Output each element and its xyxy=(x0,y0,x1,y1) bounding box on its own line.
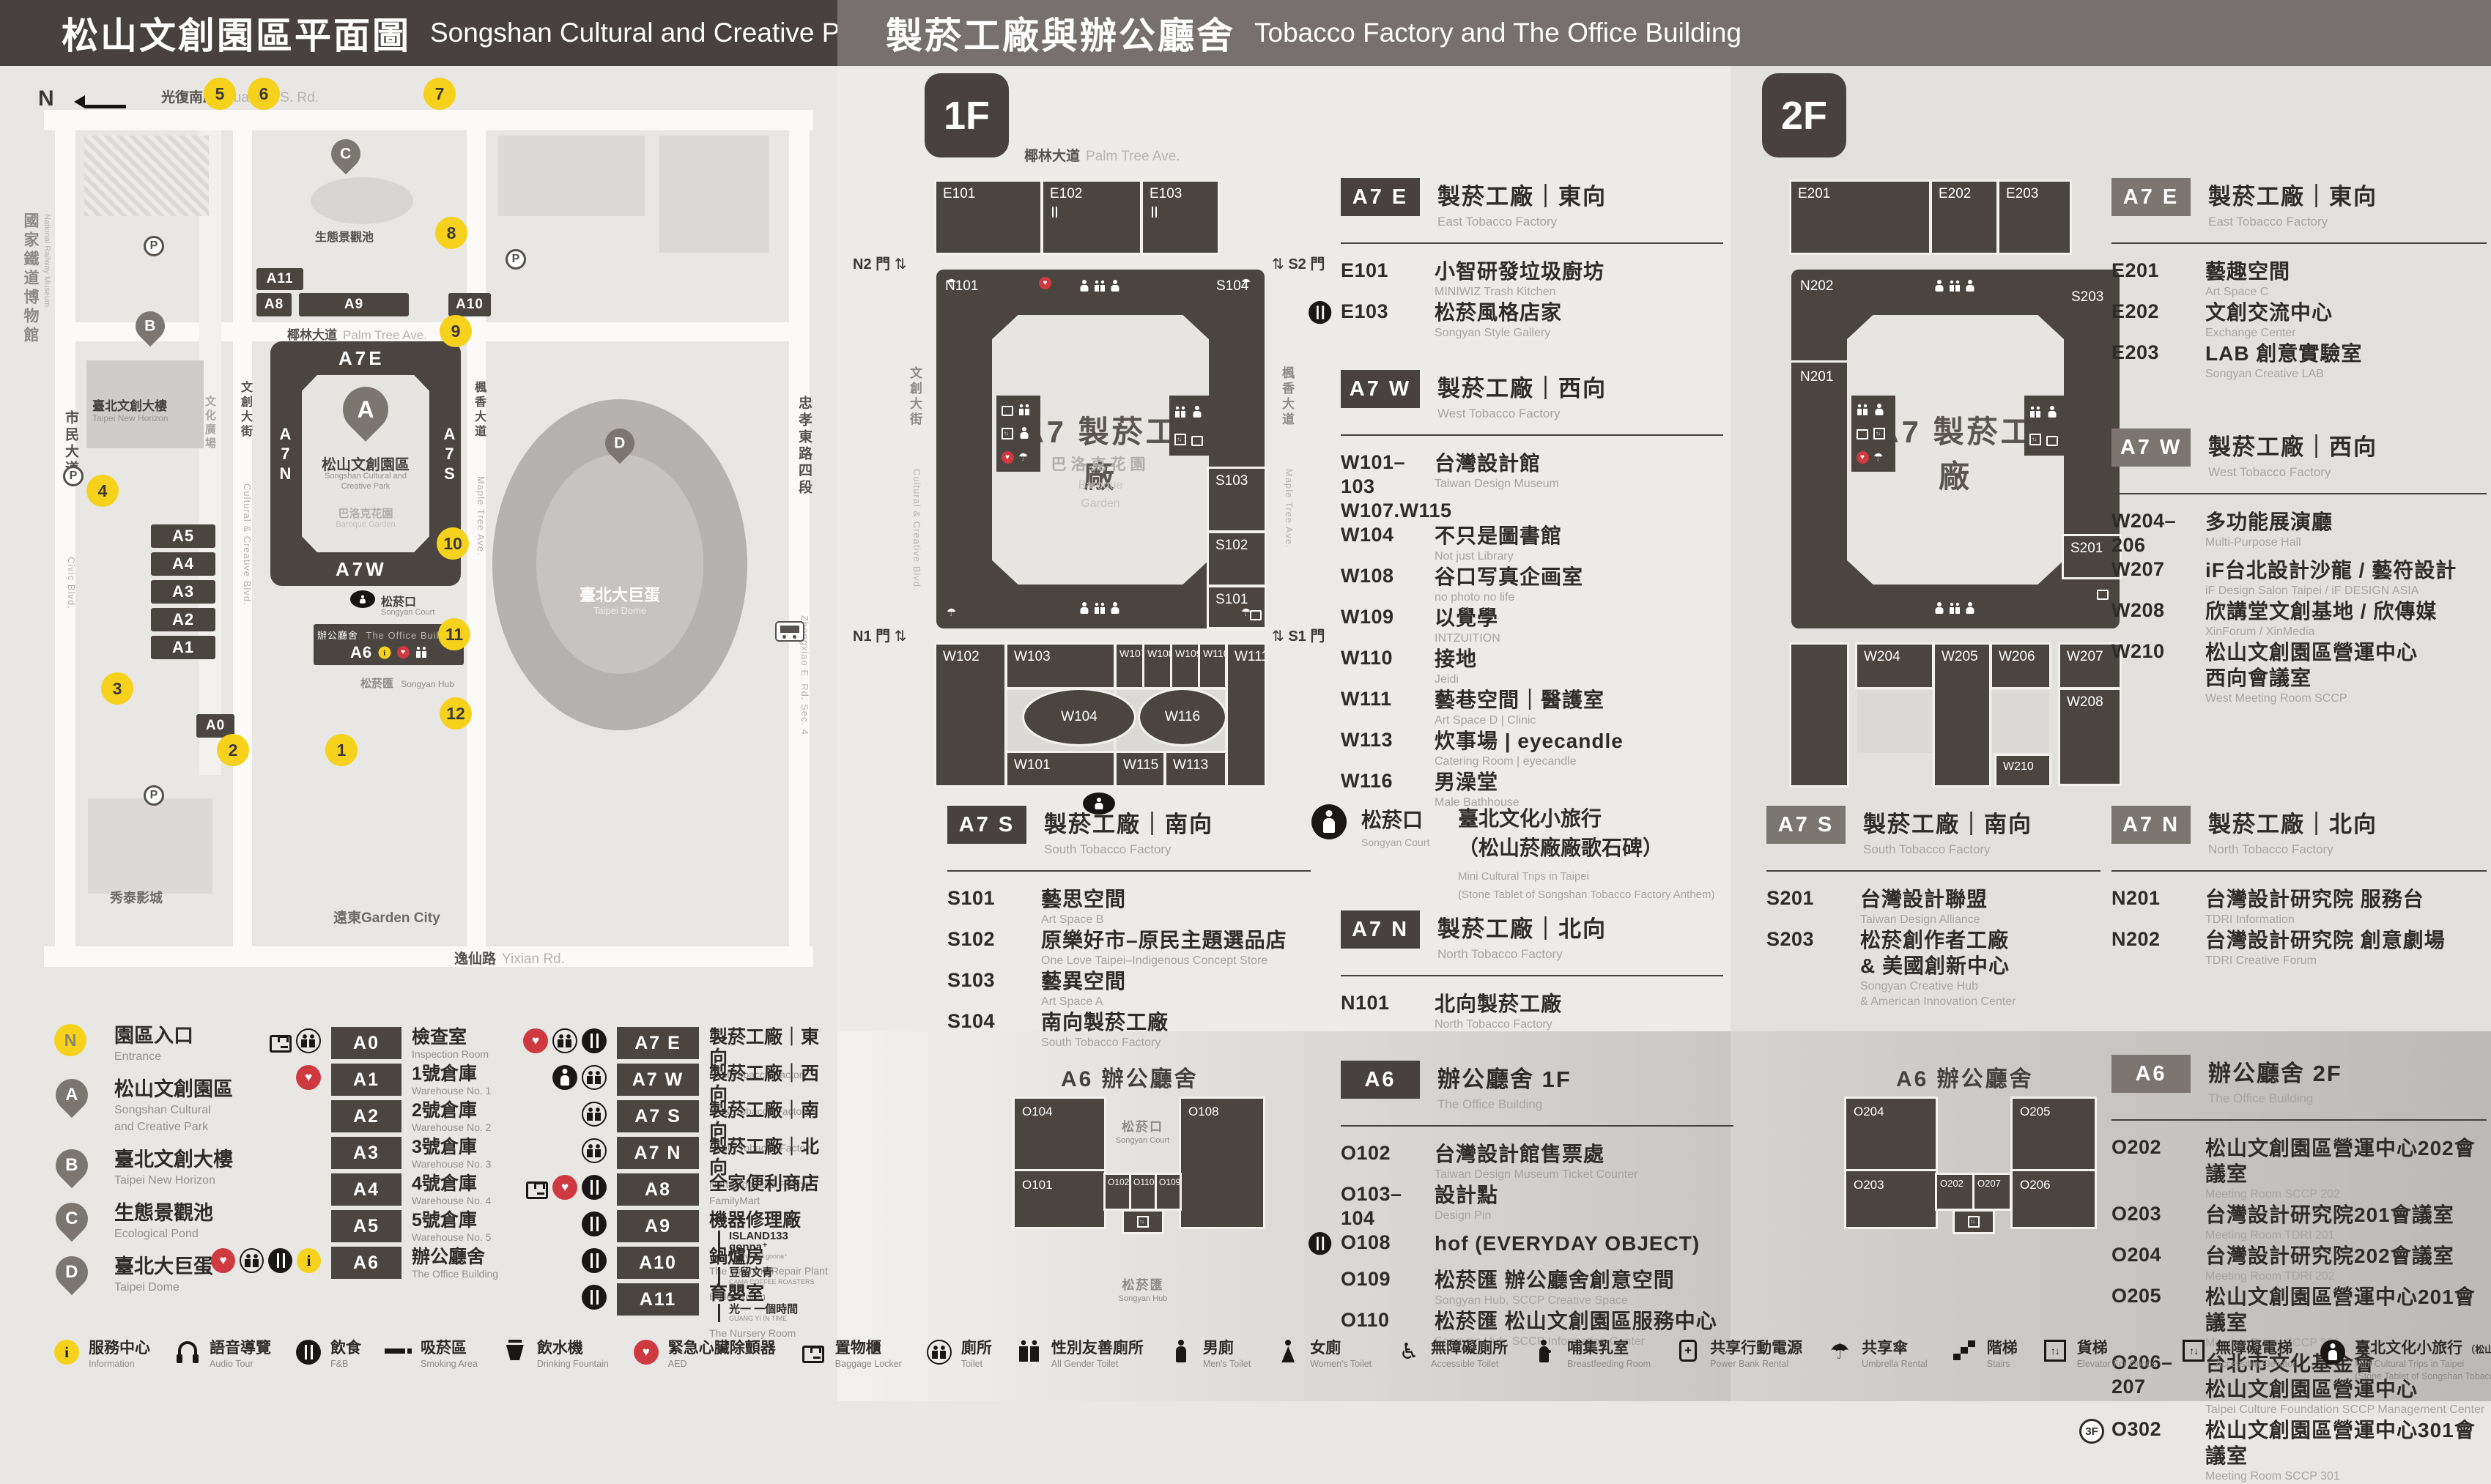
facility-text: 緊急心臟除顫器 AED xyxy=(668,1339,776,1370)
legend-building-row: A7 W 製菸工廠｜西向 West Tobacco Factory xyxy=(478,1064,829,1100)
person-icon xyxy=(1018,427,1030,439)
zone-badge: A6 xyxy=(2111,1055,2191,1093)
section-title-en: West Tobacco Factory xyxy=(2208,465,2487,480)
facility-icon-slot xyxy=(293,1339,324,1365)
section-title-en: The Office Building xyxy=(2208,1091,2487,1106)
facility-text: 男廁 Men's Toilet xyxy=(1203,1339,1251,1370)
room-name: 谷口写真企画室 no photo no life xyxy=(1435,564,1723,605)
gate-n2: N2 門 ⇅ xyxy=(853,252,906,273)
a6-court-label: 松菸口 Songyan Court xyxy=(1106,1116,1180,1145)
room-list-item: N101 北向製菸工廠 North Tobacco Factory xyxy=(1309,991,1723,1032)
facility-item: 共享傘 Umbrella Rental xyxy=(1824,1339,1928,1370)
room-list-item: W104 不只是圖書館 Not just Library xyxy=(1309,523,1723,564)
locker-icon xyxy=(1191,436,1203,446)
section-1f-a7s: A7 S 製菸工廠｜南向 South Tobacco Factory S101 … xyxy=(915,806,1311,1050)
room-o205: O205 xyxy=(2020,1105,2051,1119)
room-list-item: E101 小智研發垃圾廚坊 MINIWIZ Trash Kitchen xyxy=(1309,259,1723,300)
facility-item: 女廁 Women's Toilet xyxy=(1273,1339,1372,1370)
facility-icon-slot xyxy=(2317,1339,2348,1365)
room-w205: W205 xyxy=(1935,645,1989,785)
elevator-icon xyxy=(1873,428,1885,439)
legend-row-icons xyxy=(478,1100,607,1127)
facility-icon xyxy=(506,1340,524,1360)
room-w113: W113 xyxy=(1166,753,1225,785)
zone-badge: A7 W xyxy=(1341,370,1420,408)
room-code: W109 xyxy=(1341,605,1435,629)
room-name: 松山文創園區營運中心 西向會議室 West Meeting Room SCCP xyxy=(2205,639,2487,706)
right-header: 製菸工廠與辦公廳舍 Tobacco Factory and The Office… xyxy=(837,0,2491,66)
facility-item: 哺集乳室 Breastfeeding Room xyxy=(1530,1339,1651,1370)
room-code: W204–206 xyxy=(2111,509,2205,557)
legend-building-row: A11 育嬰室光一 一個時間GUANG YI IN TIME The Nurse… xyxy=(478,1283,829,1320)
section-title-zh: 辦公廳舍 1F xyxy=(1437,1061,1733,1094)
divider xyxy=(1766,870,2100,872)
elevator-icon xyxy=(1137,1216,1149,1228)
room-w107: W107 xyxy=(1117,645,1143,687)
room-name: 台灣設計研究院 創意劇場 TDRI Creative Forum xyxy=(2205,927,2487,968)
room-divider xyxy=(1015,1169,1104,1171)
toilet-icon xyxy=(1949,280,1961,292)
umbrella-icon xyxy=(947,606,958,619)
songyan-court-block: 松菸口 Songyan Court 臺北文化小旅行 （松山菸廠廠歌石碑） Min… xyxy=(1311,804,1726,904)
room-list-item: O203 台灣設計研究院201會議室 Meeting Room TDRI 201 xyxy=(2079,1202,2487,1243)
updown-arrow-icon: ⇅ xyxy=(895,628,907,645)
right-title-zh: 製菸工廠與辦公廳舍 xyxy=(886,7,1235,59)
room-list-item: W109 以覺學 INTZUITION xyxy=(1309,605,1723,646)
floor-badge-1f: 1F xyxy=(925,73,1009,157)
plan1f-street-right-en: Maple Tree Ave. xyxy=(1281,469,1297,549)
building-code-badge: A4 xyxy=(331,1173,401,1206)
building-code-badge: A7 S xyxy=(617,1100,699,1132)
floor-badge-2f: 2F xyxy=(1762,73,1846,157)
section-1f-a7w: A7 W 製菸工廠｜西向 West Tobacco Factory W101–1… xyxy=(1309,370,1723,810)
legend-building-row: A2 2號倉庫 Warehouse No. 2 xyxy=(211,1100,504,1137)
facility-text: 貨梯 Elevator For Goods xyxy=(2077,1339,2156,1370)
facility-item: 無障礙電梯 Accessible Elevator xyxy=(2178,1339,2295,1370)
room-code: O103–104 xyxy=(1341,1182,1435,1231)
facility-icon xyxy=(927,1340,952,1365)
facility-item: 飲水機 Drinking Fountain xyxy=(500,1339,609,1370)
room-w109: W109 xyxy=(1172,645,1199,687)
facility-icon-slot xyxy=(172,1339,203,1363)
person-icon xyxy=(1078,280,1090,292)
facility-text: 語音導覽 Audio Tour xyxy=(210,1339,271,1370)
room-divider xyxy=(1846,1169,1936,1171)
facility-item: 吸菸區 Smoking Area xyxy=(383,1339,478,1370)
room-code: O203 xyxy=(2111,1202,2205,1226)
facility-legend-strip: 服務中心 Information 語音導覽 Audio Tour 飲食 F&B xyxy=(51,1339,2491,1383)
divider xyxy=(1341,975,1723,976)
floor-3f-badge: 3F xyxy=(2079,1419,2104,1444)
room-icon xyxy=(1309,301,1331,324)
room-list-item: O109 松菸匯 辦公廳舍創意空間 Songyan Hub, SCCP Crea… xyxy=(1309,1267,1733,1308)
room-list-item: W210 松山文創園區營運中心 西向會議室 West Meeting Room … xyxy=(2079,639,2487,706)
zone-badge: A7 E xyxy=(1341,178,1420,216)
legend-building-row: A7 N 製菸工廠｜北向 North Tobacco Factory xyxy=(478,1137,829,1173)
entrance-number: 2 xyxy=(217,734,249,766)
facility-icon-slot xyxy=(500,1339,530,1360)
divider xyxy=(2111,242,2487,244)
room-name: 台灣設計研究院 服務台 TDRI Information xyxy=(2205,886,2487,927)
room-divider xyxy=(1791,360,1847,363)
legend-building-text: 育嬰室光一 一個時間GUANG YI IN TIME The Nursery R… xyxy=(709,1283,829,1340)
facility-icon xyxy=(2044,1340,2066,1362)
legend-row-icons xyxy=(478,1064,607,1090)
fnb-icon xyxy=(1149,207,1161,219)
section-title-en: West Tobacco Factory xyxy=(1437,407,1723,421)
room-name: 松菸匯 辦公廳舍創意空間 Songyan Hub, SCCP Creative … xyxy=(1435,1267,1733,1308)
plan2f-facility-icons-left xyxy=(1851,396,1895,472)
facility-icon-slot xyxy=(1014,1339,1045,1363)
plan1f-street-left: 文創大街 xyxy=(906,366,924,428)
room-name: 藝巷空間｜醫護室 Art Space D | Clinic xyxy=(1435,687,1723,728)
facility-text: 廁所 Toilet xyxy=(961,1339,992,1370)
room-w210: W210 xyxy=(1996,756,2049,785)
section-1f-a7n: A7 N 製菸工廠｜北向 North Tobacco Factory N101 … xyxy=(1309,910,1723,1032)
room-list-item: E201 藝趣空間 Art Space C xyxy=(2079,259,2487,300)
updown-arrow-icon: ⇅ xyxy=(895,256,907,272)
room-list-item: S104 南向製菸工廠 South Tobacco Factory xyxy=(915,1009,1311,1050)
room-name: 小智研發垃圾廚坊 MINIWIZ Trash Kitchen xyxy=(1435,259,1723,300)
room-e203: E203 xyxy=(1999,182,2070,253)
aed-icon xyxy=(1002,451,1014,464)
section-title-en: East Tobacco Factory xyxy=(1437,215,1723,229)
room-list-item: S103 藝異空間 Art Space A xyxy=(915,968,1311,1009)
room-name: 多功能展演廳 Multi-Purpose Hall xyxy=(2205,509,2487,550)
room-name: 設計點 Design Pin xyxy=(1435,1182,1733,1223)
room-name: 不只是圖書館 Not just Library xyxy=(1435,523,1723,564)
section-title-zh: 製菸工廠｜西向 xyxy=(1437,370,1723,403)
section-1f-a6: A6 辦公廳舍 1F The Office Building O102 台灣設計… xyxy=(1309,1061,1733,1349)
room-w104: W104 xyxy=(1024,690,1134,744)
elevator-icon xyxy=(1174,434,1186,445)
room-code: O109 xyxy=(1341,1267,1435,1291)
room-list-item: W110 接地 Jeidi xyxy=(1309,646,1723,687)
room-name: 松山文創園區營運中心202會議室 Meeting Room SCCP 202 xyxy=(2205,1135,2487,1202)
facility-icon-slot xyxy=(924,1339,955,1365)
legend-row-icons xyxy=(478,1137,607,1163)
facility-text: 階梯 Stairs xyxy=(1987,1339,2018,1370)
facility-item: 飲食 F&B xyxy=(293,1339,361,1370)
a6-plan-title-1f: A6 辦公廳舍 xyxy=(1061,1061,1199,1093)
plan2f-light-area xyxy=(1857,690,1932,753)
room-e202: E202 xyxy=(1932,182,1996,253)
section-title-zh: 製菸工廠｜東向 xyxy=(1437,178,1723,211)
room-name: LAB 創意實驗室 Songyan Creative LAB xyxy=(2205,341,2487,382)
room-list-item: W204–206 多功能展演廳 Multi-Purpose Hall xyxy=(2079,509,2487,557)
room-code: O108 xyxy=(1341,1231,1435,1255)
room-list-item: O202 松山文創園區營運中心202會議室 Meeting Room SCCP … xyxy=(2079,1135,2487,1202)
facility-text: 哺集乳室 Breastfeeding Room xyxy=(1567,1339,1651,1370)
entrance-number: 5 xyxy=(204,78,236,110)
room-code: O102 xyxy=(1341,1141,1435,1165)
room-o104: O104 xyxy=(1022,1105,1053,1119)
room-list-item: W101–103W107.W115 台灣設計館 Taiwan Design Mu… xyxy=(1309,450,1723,523)
building-code-badge: A7 W xyxy=(617,1064,699,1096)
room-list-item: 3F O302 松山文創園區營運中心301會議室 Meeting Room SC… xyxy=(2079,1417,2487,1484)
room-o110: O110 xyxy=(1131,1175,1155,1209)
legend-icon xyxy=(297,1248,321,1273)
room-list-item: W108 谷口写真企画室 no photo no life xyxy=(1309,564,1723,605)
legend-icon xyxy=(523,1028,548,1053)
facility-icon-slot xyxy=(2040,1339,2070,1362)
legend-icon xyxy=(296,1028,321,1053)
facility-text: 共享行動電源 Power Bank Rental xyxy=(1710,1339,1802,1370)
room-name: 台灣設計館售票處 Taiwan Design Museum Ticket Cou… xyxy=(1435,1141,1733,1182)
facility-icon xyxy=(2183,1340,2205,1362)
room-code: E103 xyxy=(1341,300,1435,324)
person-icon xyxy=(1933,602,1945,615)
room-name: 原樂好市–原民主題選品店 One Love Taipei–Indigenous … xyxy=(1041,927,1311,968)
elevator-icon xyxy=(1968,1216,1980,1228)
room-o202: O202 xyxy=(1937,1175,1972,1209)
room-list-item: O108 hof (EVERYDAY OBJECT) xyxy=(1309,1231,1733,1267)
legend-icon xyxy=(582,1065,607,1090)
entrance-markers: 567891011124321 xyxy=(0,0,837,1025)
room-list-item: S102 原樂好市–原民主題選品店 One Love Taipei–Indige… xyxy=(915,927,1311,968)
facility-item: 階梯 Stairs xyxy=(1950,1339,2018,1370)
facility-item: 貨梯 Elevator For Goods xyxy=(2040,1339,2156,1370)
legend-icon xyxy=(582,1028,607,1053)
section-title-zh: 辦公廳舍 2F xyxy=(2208,1055,2487,1088)
a6-elevator-block xyxy=(1955,1212,1993,1232)
legend-building-row: A9 機器修理廠ISLAND133 gonna⁺ISLAND133 gonna⁺… xyxy=(478,1210,829,1247)
room-o206: O206 xyxy=(2020,1178,2051,1192)
section-title-zh: 製菸工廠｜東向 xyxy=(2208,178,2487,211)
gate-n1: N1 門 ⇅ xyxy=(853,624,906,645)
room-w204: W204 xyxy=(1857,645,1932,687)
entrance-number: 10 xyxy=(437,527,469,560)
facility-text: 臺北文化小旅行（松山菸廠廠歌石碑） Mini Cultural Trips in… xyxy=(2355,1339,2491,1383)
legend-building-row: A10 鍋爐房豆留文青CAMA COFFEE ROASTERS Boiler R… xyxy=(478,1247,829,1283)
legend-icon xyxy=(552,1175,577,1200)
room-name: 文創交流中心 Exchange Center xyxy=(2205,300,2487,341)
entrance-number: 12 xyxy=(440,697,472,730)
room-icon xyxy=(1309,1232,1331,1255)
facility-icon xyxy=(385,1340,412,1356)
a6-plan-title-2f: A6 辦公廳舍 xyxy=(1896,1061,2034,1093)
legend-icon xyxy=(582,1175,607,1200)
room-w103: W103 xyxy=(1007,645,1114,687)
locker-icon xyxy=(1857,429,1868,439)
songyan-desc: 臺北文化小旅行 （松山菸廠廠歌石碑） Mini Cultural Trips i… xyxy=(1458,804,1726,904)
legend-icon xyxy=(582,1138,607,1163)
section-title-en: South Tobacco Factory xyxy=(1863,842,2100,857)
room-o109: O109 xyxy=(1157,1175,1180,1209)
person-icon xyxy=(1109,602,1121,615)
legend-row-icons xyxy=(211,1173,321,1175)
facility-text: 飲食 F&B xyxy=(330,1339,361,1370)
room-name: 北向製菸工廠 North Tobacco Factory xyxy=(1435,991,1723,1032)
legend-marker: A xyxy=(49,1072,95,1118)
umbrella-icon xyxy=(1018,451,1030,464)
plan2f-light-area xyxy=(1992,690,2049,753)
section-title-en: South Tobacco Factory xyxy=(1044,842,1311,857)
room-o207: O207 xyxy=(1974,1175,2010,1209)
room-n202: N202 xyxy=(1800,278,1833,294)
room-list-item: N201 台灣設計研究院 服務台 TDRI Information xyxy=(2079,886,2487,927)
umbrella-icon xyxy=(1241,277,1253,289)
umbrella-icon xyxy=(1873,451,1885,464)
room-o101: O101 xyxy=(1022,1178,1053,1192)
room-n201: N201 xyxy=(1800,369,1833,385)
legend-marker: D xyxy=(49,1250,95,1295)
a6-elevator-block xyxy=(1124,1212,1162,1232)
legend-icon xyxy=(552,1028,577,1053)
room-name: 藝異空間 Art Space A xyxy=(1041,968,1311,1009)
room-name: 南向製菸工廠 South Tobacco Factory xyxy=(1041,1009,1311,1050)
facility-text: 共享傘 Umbrella Rental xyxy=(1862,1339,1928,1370)
room-list-item: S201 台灣設計聯盟 Taiwan Design Alliance xyxy=(1734,886,2100,927)
room-list-item: E202 文創交流中心 Exchange Center xyxy=(2079,300,2487,341)
facility-icon-slot xyxy=(1530,1339,1561,1363)
legend-row-icons xyxy=(211,1100,321,1102)
section-title-en: North Tobacco Factory xyxy=(1437,947,1723,962)
entrance-number: 4 xyxy=(86,475,119,507)
entrance-number: 8 xyxy=(435,217,467,249)
room-s103: S103 xyxy=(1209,469,1265,530)
room-w206: W206 xyxy=(1992,645,2049,687)
legend-icon xyxy=(582,1285,607,1310)
room-code: S103 xyxy=(947,968,1041,993)
facility-text: 置物櫃 Baggage Locker xyxy=(835,1339,902,1370)
legend-icon xyxy=(211,1248,235,1273)
section-2f-a7w: A7 W 製菸工廠｜西向 West Tobacco Factory W204–2… xyxy=(2079,428,2487,706)
facility-icon-slot xyxy=(798,1339,829,1363)
legend-icon xyxy=(268,1248,292,1273)
legend-building-row: A1 1號倉庫 Warehouse No. 1 xyxy=(211,1064,504,1100)
zone-badge: A7 N xyxy=(2111,806,2191,844)
building-code-badge: A9 xyxy=(617,1210,699,1242)
section-title-zh: 製菸工廠｜南向 xyxy=(1863,806,2100,839)
updown-arrow-icon: ⇅ xyxy=(1272,628,1284,645)
facility-icon-slot xyxy=(1824,1339,1855,1363)
zone-badge: A7 E xyxy=(2111,178,2191,216)
facility-icon-slot xyxy=(1673,1339,1703,1362)
person-icon xyxy=(1873,404,1885,416)
section-2f-a7s: A7 S 製菸工廠｜南向 South Tobacco Factory S201 … xyxy=(1734,806,2100,1009)
room-code: O205 xyxy=(2111,1284,2205,1308)
divider xyxy=(2111,870,2487,872)
zone-badge: A7 S xyxy=(1766,806,1846,844)
facility-icon xyxy=(802,1346,824,1363)
legend-row-icons xyxy=(478,1283,607,1310)
building-code-badge: A7 E xyxy=(617,1027,699,1059)
toilet-icon xyxy=(1857,404,1868,416)
songyan-name: 松菸口 Songyan Court xyxy=(1361,804,1451,904)
facility-icon xyxy=(1538,1340,1552,1363)
legend-row-icons xyxy=(478,1247,607,1273)
room-name: 台灣設計研究院201會議室 Meeting Room TDRI 201 xyxy=(2205,1202,2487,1243)
a6-hub-label: 松菸匯 Songyan Hub xyxy=(1099,1275,1187,1303)
legend-row-icons xyxy=(478,1210,607,1236)
room-code: O302 xyxy=(2111,1417,2205,1442)
legend-row-icons xyxy=(211,1064,321,1090)
zone-badge: A7 W xyxy=(2111,428,2191,467)
room-name: 台灣設計研究院202會議室 Meeting Room TDRI 202 xyxy=(2205,1243,2487,1284)
divider xyxy=(2111,493,2487,494)
room-code: O202 xyxy=(2111,1135,2205,1160)
entrance-number: 1 xyxy=(325,734,358,766)
divider xyxy=(947,870,1311,872)
room-name: 欣講堂文創基地 / 欣傳媒 XinForum / XinMedia xyxy=(2205,598,2487,639)
person-icon xyxy=(1933,280,1945,292)
room-name: iF台北設計沙龍 / 藝符設計 iF Design Salon Taipei /… xyxy=(2205,557,2487,598)
room-w102: W102 xyxy=(936,645,1004,785)
legend-buildings-a: A0 檢查室 Inspection Room A1 1號倉庫 Warehouse… xyxy=(211,1027,504,1283)
room-code: N201 xyxy=(2111,886,2205,910)
building-code-badge: A1 xyxy=(331,1064,401,1096)
person-icon xyxy=(1191,406,1203,418)
room-name: 藝思空間 Art Space B xyxy=(1041,886,1311,927)
updown-arrow-icon: ⇅ xyxy=(1272,256,1284,272)
legend-row-icons xyxy=(211,1210,321,1212)
building-code-badge: A5 xyxy=(331,1210,401,1242)
legend-sub-brand: 光一 一個時間GUANG YI IN TIME xyxy=(718,1304,798,1322)
person-icon xyxy=(2046,406,2058,418)
building-code-badge: A11 xyxy=(617,1283,699,1316)
room-s102: S102 xyxy=(1209,533,1265,585)
room-list-item: W111 藝巷空間｜醫護室 Art Space D | Clinic xyxy=(1309,687,1723,728)
aed-icon xyxy=(1857,451,1869,464)
legend-building-row: A4 4號倉庫 Warehouse No. 4 xyxy=(211,1173,504,1210)
facility-icon xyxy=(1829,1340,1851,1363)
facility-icon-slot xyxy=(51,1339,82,1365)
facility-item: 男廁 Men's Toilet xyxy=(1166,1339,1251,1370)
facility-item: 服務中心 Information xyxy=(51,1339,150,1370)
legend-row-icons xyxy=(211,1247,321,1273)
legend-icon xyxy=(582,1212,607,1236)
room-name: 以覺學 INTZUITION xyxy=(1435,605,1723,646)
building-code-badge: A2 xyxy=(331,1100,401,1132)
room-code: W207 xyxy=(2111,557,2205,582)
legend-marker: C xyxy=(49,1196,95,1242)
room-code: S101 xyxy=(947,886,1041,910)
room-code: O204 xyxy=(2111,1243,2205,1267)
plan1f-facility-icons-left xyxy=(996,396,1040,472)
facility-item: 共享行動電源 Power Bank Rental xyxy=(1673,1339,1802,1370)
divider xyxy=(1341,434,1723,436)
zone-badge: A7 S xyxy=(947,806,1026,844)
room-name: 松菸創作者工廠 & 美國創新中心 Songyan Creative Hub & … xyxy=(1860,927,2100,1009)
plan2f-top-icons xyxy=(1933,280,1976,292)
facility-text: 性別友善廁所 All Gender Toilet xyxy=(1051,1339,1144,1370)
plan1f-street-right: 楓香大道 xyxy=(1278,366,1296,428)
room-e101: E101 xyxy=(936,182,1040,253)
facility-icon xyxy=(634,1340,659,1365)
room-code: W101–103W107.W115 xyxy=(1341,450,1435,523)
room-s101: S101 xyxy=(1209,587,1265,627)
room-w101: W101 xyxy=(1007,753,1114,785)
facility-text: 女廁 Women's Toilet xyxy=(1310,1339,1372,1370)
elevator-icon xyxy=(2029,434,2041,445)
room-o102: O102 xyxy=(1106,1175,1130,1209)
facility-icon-slot xyxy=(383,1339,414,1356)
entrance-number: 7 xyxy=(423,78,456,110)
elevator-icon xyxy=(1002,428,1013,439)
section-title-zh: 製菸工廠｜西向 xyxy=(2208,428,2487,461)
room-o204: O204 xyxy=(1854,1105,1884,1119)
room-code: W210 xyxy=(2111,639,2205,664)
facility-icon-slot xyxy=(631,1339,662,1365)
room-e201: E201 xyxy=(1791,182,1929,253)
room-code: W208 xyxy=(2111,598,2205,623)
plan1f-street-left-en: Cultural & Creative Blvd. xyxy=(908,469,925,591)
facility-item: 臺北文化小旅行（松山菸廠廠歌石碑） Mini Cultural Trips in… xyxy=(2317,1339,2491,1383)
plan1f-facility-icons-right xyxy=(1169,396,1213,456)
person-icon xyxy=(1964,280,1976,292)
section-title-en: North Tobacco Factory xyxy=(2208,842,2487,857)
